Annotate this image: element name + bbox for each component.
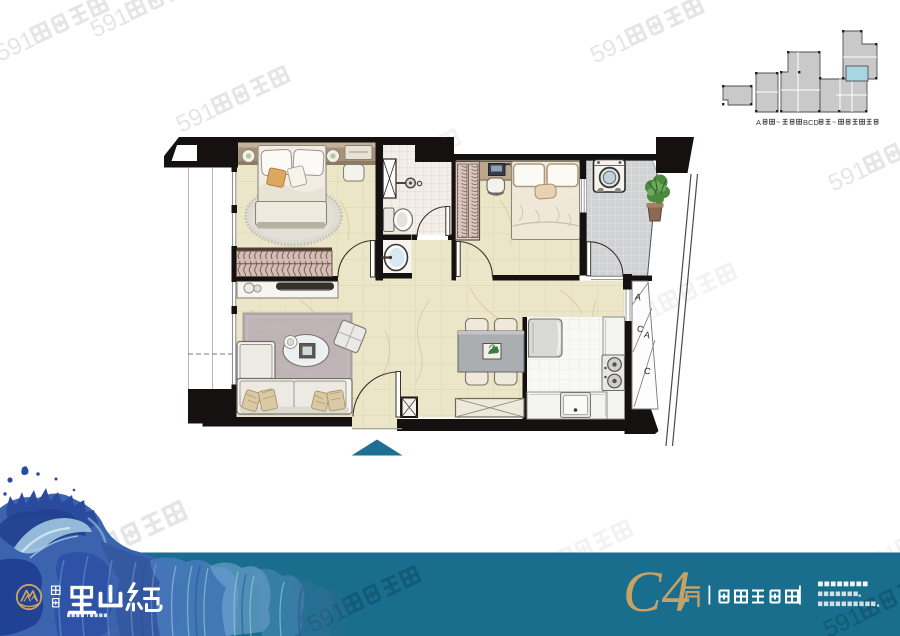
svg-text:~: ~ — [776, 117, 781, 126]
svg-text:C4: C4 — [623, 559, 691, 624]
svg-text:BCD: BCD — [803, 118, 819, 127]
svg-text:~: ~ — [832, 117, 837, 126]
svg-text:A: A — [756, 118, 761, 127]
